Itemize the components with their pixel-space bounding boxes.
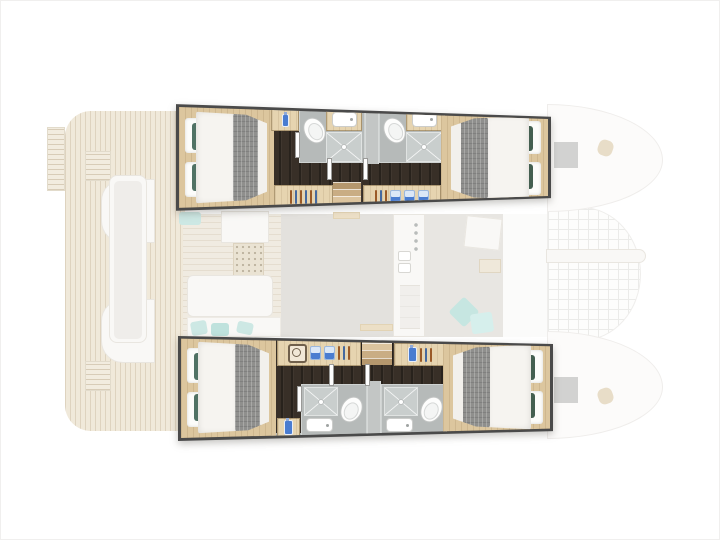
companionway-stairs xyxy=(333,182,361,210)
cockpit-bench xyxy=(109,175,147,343)
duvet xyxy=(198,341,238,434)
cabin-door xyxy=(363,158,368,180)
shower-drain-icon xyxy=(304,387,338,416)
storage-cabinet xyxy=(394,343,446,366)
foot-blanket xyxy=(233,113,259,202)
stair-landing-starboard xyxy=(360,324,393,331)
utility-cabinet xyxy=(277,340,361,366)
starboard-aft-bathroom xyxy=(301,384,367,437)
double-bed xyxy=(185,341,273,434)
bulkhead xyxy=(367,381,381,438)
duvet xyxy=(485,115,528,201)
galley-sink-icon xyxy=(398,251,411,261)
galley-drawers xyxy=(400,285,420,329)
jar-icon xyxy=(324,346,335,360)
storage-cabinet xyxy=(271,109,299,131)
port-hull xyxy=(176,103,551,213)
sink-icon xyxy=(386,418,413,432)
forward-deck xyxy=(503,214,547,337)
double-bed xyxy=(447,115,543,201)
starboard-forward-bathroom xyxy=(381,384,447,437)
storage-cabinet xyxy=(277,418,300,437)
stair-landing-port xyxy=(333,212,360,219)
dinghy-platform xyxy=(47,127,65,191)
bow-hatch xyxy=(554,142,578,168)
bow-hatch xyxy=(554,377,578,403)
double-bed xyxy=(449,344,545,430)
storage-cabinet xyxy=(363,185,441,209)
foot-blanket xyxy=(235,343,261,432)
hanger-icons xyxy=(420,348,432,362)
bed-foot xyxy=(258,118,268,198)
chart-table xyxy=(221,211,269,243)
washing-machine-icon xyxy=(288,344,307,363)
cockpit-table-port xyxy=(85,151,111,181)
lounge-table xyxy=(463,215,502,251)
hull-interior xyxy=(179,106,548,210)
forward-crossbeam xyxy=(546,249,646,263)
bed-foot xyxy=(260,348,270,428)
port-aft-bathroom xyxy=(299,107,365,163)
jar-icon xyxy=(310,346,321,360)
hanger-icons xyxy=(338,346,350,360)
shower-drain-icon xyxy=(406,132,442,162)
toilet-icon xyxy=(336,393,367,427)
saloon-sofa xyxy=(187,275,273,317)
sink-icon xyxy=(306,418,333,432)
stove-knobs-icon xyxy=(412,221,422,253)
cockpit-table-starboard xyxy=(85,361,111,391)
duvet xyxy=(487,344,530,430)
cabin-door xyxy=(365,364,370,386)
galley-sink-icon xyxy=(398,263,411,273)
starboard-hull xyxy=(178,331,553,441)
shower-drain-icon xyxy=(384,387,418,416)
saloon-rug xyxy=(281,214,395,337)
companionway-stairs xyxy=(362,335,392,365)
bulkhead xyxy=(365,106,379,164)
bathroom-door xyxy=(295,132,300,158)
duvet xyxy=(196,111,236,204)
bottle-icon xyxy=(284,420,293,435)
galley-counter xyxy=(393,214,425,337)
bed-foot xyxy=(453,350,464,424)
ghost-layer xyxy=(1,1,720,540)
bathroom-door xyxy=(297,386,302,412)
sink-icon xyxy=(332,112,357,127)
foot-blanket xyxy=(460,117,488,200)
bottle-icon xyxy=(408,347,417,362)
double-bed xyxy=(183,111,271,204)
hull-interior xyxy=(181,334,550,438)
trampoline xyxy=(547,207,641,341)
chart-seat-cushion xyxy=(179,212,201,225)
cabin-door xyxy=(327,158,332,180)
bench-cushion xyxy=(114,181,142,339)
cabin-door xyxy=(329,364,334,386)
bottle-icon xyxy=(282,114,289,127)
lounge-grill xyxy=(479,259,501,273)
foot-blanket xyxy=(462,346,490,429)
bed-foot xyxy=(451,121,462,195)
floor-plan xyxy=(0,0,720,540)
port-forward-bathroom xyxy=(379,107,445,163)
